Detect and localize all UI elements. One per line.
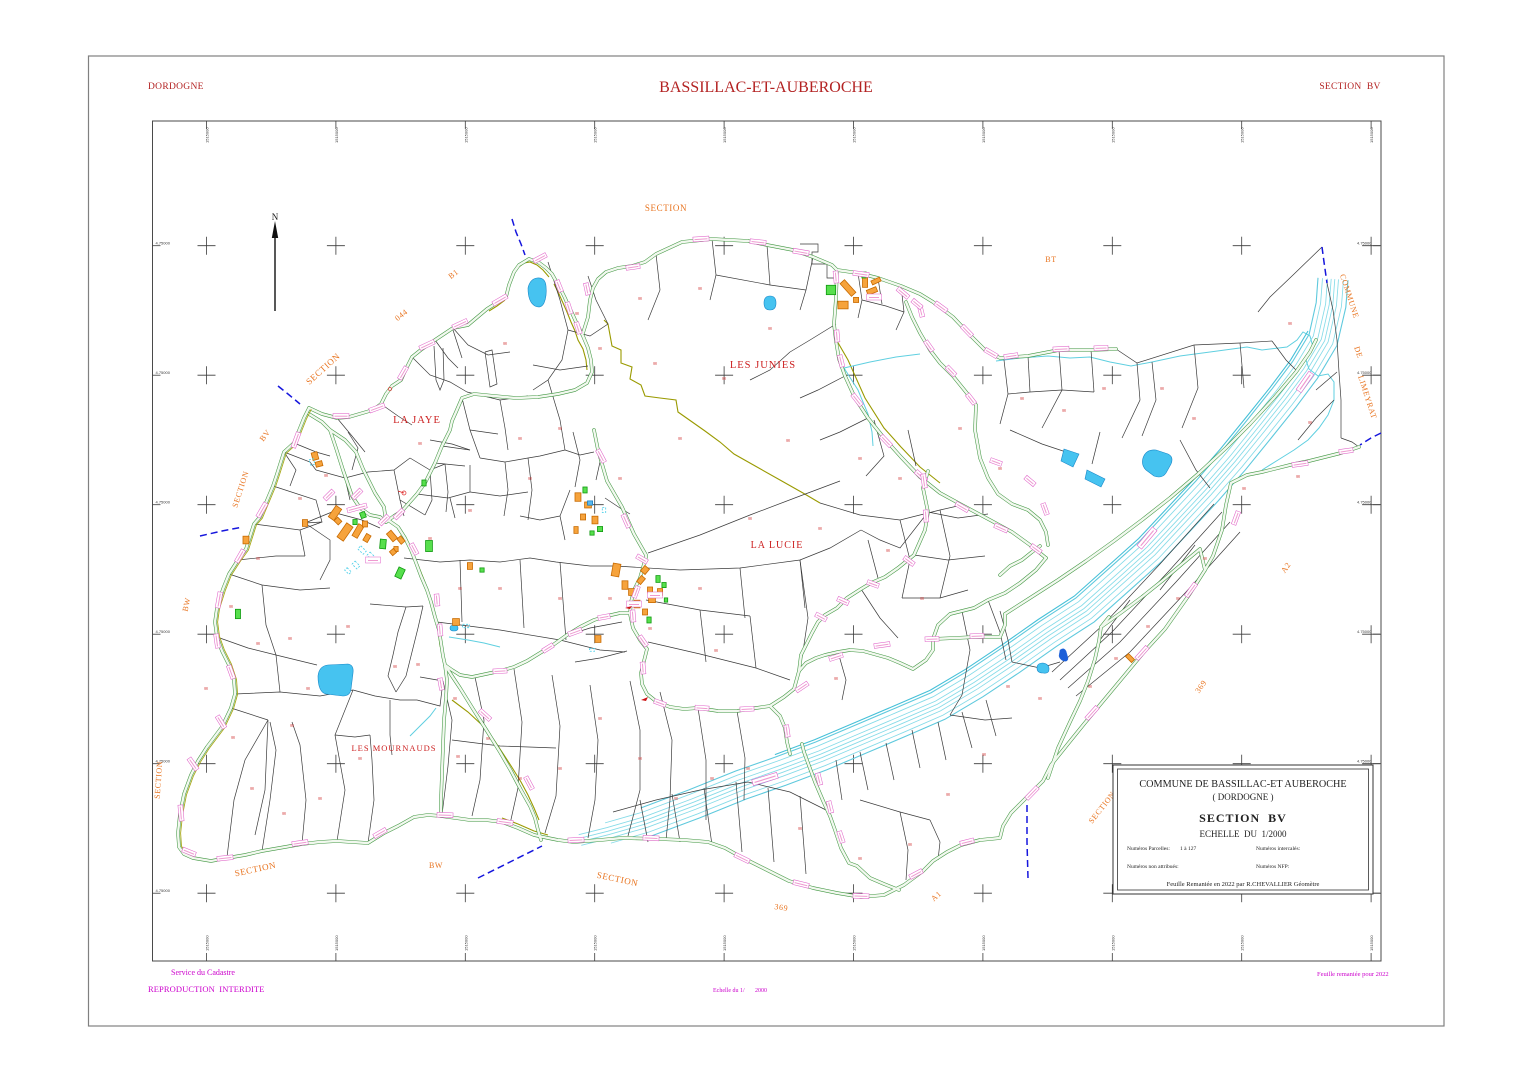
svg-text:88: 88	[698, 587, 702, 591]
svg-text:88: 88	[324, 474, 328, 478]
svg-text:DORDOGNE: DORDOGNE	[148, 82, 204, 92]
svg-text:88: 88	[1020, 397, 1024, 401]
svg-text:SECTION BV: SECTION BV	[1319, 82, 1380, 92]
svg-text:88: 88	[498, 587, 502, 591]
svg-text:88: 88	[528, 477, 532, 481]
svg-text:1515000: 1515000	[205, 127, 210, 143]
svg-text:4.75000: 4.75000	[156, 370, 171, 375]
svg-text:88: 88	[1088, 685, 1092, 689]
svg-text:4.75000: 4.75000	[1357, 759, 1372, 764]
svg-text:Numéros intercalés:: Numéros intercalés:	[1256, 846, 1301, 852]
svg-text:1515000: 1515000	[852, 935, 857, 951]
svg-text:1515000: 1515000	[1110, 127, 1115, 143]
svg-text:88: 88	[653, 362, 657, 366]
svg-text:88: 88	[1203, 557, 1207, 561]
svg-text:88: 88	[306, 687, 310, 691]
svg-text:88: 88	[503, 342, 507, 346]
svg-text:88: 88	[1288, 322, 1292, 326]
svg-text:88: 88	[250, 787, 254, 791]
svg-text:N: N	[272, 212, 279, 222]
svg-text:88: 88	[1192, 417, 1196, 421]
svg-text:88: 88	[393, 665, 397, 669]
svg-text:88: 88	[958, 427, 962, 431]
svg-text:88: 88	[648, 627, 652, 631]
svg-text:88: 88	[358, 757, 362, 761]
svg-text:88: 88	[1114, 657, 1118, 661]
svg-text:88: 88	[575, 312, 579, 316]
svg-text:1515000: 1515000	[1369, 935, 1374, 951]
svg-text:88: 88	[453, 697, 457, 701]
svg-text:88: 88	[798, 827, 802, 831]
svg-text:COMMUNE DE BASSILLAC-ET AUBERO: COMMUNE DE BASSILLAC-ET AUBEROCHE	[1139, 779, 1346, 790]
svg-text:369: 369	[774, 902, 789, 913]
svg-text:Feuille remaniée pour 2022: Feuille remaniée pour 2022	[1317, 971, 1389, 978]
svg-text:1515000: 1515000	[722, 127, 727, 143]
svg-text:88: 88	[428, 537, 432, 541]
svg-text:1515000: 1515000	[1240, 127, 1245, 143]
svg-text:Feuille Remaniée en 2022 par: Feuille Remaniée en 2022 par R.CHEVALLIE…	[1167, 881, 1320, 888]
svg-text:BT: BT	[1045, 255, 1056, 264]
svg-text:88: 88	[920, 597, 924, 601]
svg-text:BASSILLAC-ET-AUBEROCHE: BASSILLAC-ET-AUBEROCHE	[659, 79, 873, 96]
svg-text:88: 88	[768, 327, 772, 331]
svg-text:88: 88	[518, 777, 522, 781]
svg-text:88: 88	[748, 517, 752, 521]
svg-text:88: 88	[1146, 625, 1150, 629]
svg-text:LES MOURNAUDS: LES MOURNAUDS	[351, 743, 436, 753]
svg-text:LES JUNIES: LES JUNIES	[730, 360, 796, 371]
svg-text:88: 88	[456, 755, 460, 759]
svg-text:88: 88	[416, 663, 420, 667]
svg-text:BW: BW	[429, 861, 443, 870]
svg-text:88: 88	[1160, 387, 1164, 391]
svg-text:88: 88	[256, 642, 260, 646]
svg-text:88: 88	[558, 767, 562, 771]
svg-text:1515000: 1515000	[981, 935, 986, 951]
svg-text:88: 88	[458, 587, 462, 591]
svg-text:88: 88	[886, 549, 890, 553]
svg-text:4.75000: 4.75000	[156, 241, 171, 246]
svg-text:88: 88	[468, 509, 472, 513]
svg-text:88: 88	[256, 557, 260, 561]
svg-text:88: 88	[558, 427, 562, 431]
svg-text:88: 88	[486, 737, 490, 741]
svg-text:2000: 2000	[755, 988, 767, 994]
svg-text:Echelle du 1/: Echelle du 1/	[713, 988, 745, 994]
svg-text:88: 88	[598, 347, 602, 351]
svg-text:SECTION: SECTION	[645, 203, 687, 213]
svg-text:4.75000: 4.75000	[156, 629, 171, 634]
svg-text:88: 88	[638, 757, 642, 761]
svg-text:88: 88	[818, 527, 822, 531]
svg-text:88: 88	[982, 753, 986, 757]
svg-text:1515000: 1515000	[205, 935, 210, 951]
svg-text:4.75000: 4.75000	[1357, 241, 1372, 246]
svg-text:88: 88	[1308, 421, 1312, 425]
svg-text:88: 88	[1038, 697, 1042, 701]
svg-text:88: 88	[710, 777, 714, 781]
svg-text:Service du Cadastre: Service du Cadastre	[171, 968, 235, 977]
svg-text:88: 88	[674, 797, 678, 801]
svg-text:88: 88	[288, 637, 292, 641]
svg-text:ECHELLE DU 1/2000: ECHELLE DU 1/2000	[1200, 829, 1287, 839]
svg-text:88: 88	[229, 605, 233, 609]
svg-text:88: 88	[204, 687, 208, 691]
svg-text:1515000: 1515000	[981, 127, 986, 143]
svg-text:88: 88	[598, 717, 602, 721]
svg-text:88: 88	[558, 597, 562, 601]
svg-text:88: 88	[298, 497, 302, 501]
svg-text:88: 88	[1006, 685, 1010, 689]
svg-text:88: 88	[418, 442, 422, 446]
svg-text:88: 88	[231, 736, 235, 740]
svg-text:88: 88	[858, 857, 862, 861]
svg-text:88: 88	[946, 793, 950, 797]
svg-text:88: 88	[518, 437, 522, 441]
svg-text:1515000: 1515000	[1369, 127, 1374, 143]
svg-text:88: 88	[678, 437, 682, 441]
svg-text:88: 88	[908, 843, 912, 847]
svg-text:1515000: 1515000	[463, 127, 468, 143]
svg-text:88: 88	[638, 297, 642, 301]
svg-text:88: 88	[318, 797, 322, 801]
svg-text:1515000: 1515000	[1240, 935, 1245, 951]
svg-text:88: 88	[282, 812, 286, 816]
svg-text:88: 88	[746, 767, 750, 771]
svg-text:1515000: 1515000	[334, 935, 339, 951]
svg-text:1515000: 1515000	[334, 127, 339, 143]
svg-text:4.75000: 4.75000	[1357, 629, 1372, 634]
svg-text:88: 88	[1242, 487, 1246, 491]
svg-text:88: 88	[722, 377, 726, 381]
svg-text:1515000: 1515000	[593, 935, 598, 951]
svg-text:88: 88	[698, 287, 702, 291]
svg-text:88: 88	[618, 477, 622, 481]
svg-text:88: 88	[346, 625, 350, 629]
svg-text:1515000: 1515000	[852, 127, 857, 143]
svg-text:88: 88	[714, 649, 718, 653]
svg-text:Numéros NFP:: Numéros NFP:	[1256, 864, 1290, 870]
svg-text:1515000: 1515000	[593, 127, 598, 143]
svg-text:88: 88	[858, 457, 862, 461]
svg-text:1515000: 1515000	[463, 935, 468, 951]
svg-text:88: 88	[290, 724, 294, 728]
svg-text:LA JAYE: LA JAYE	[393, 415, 441, 426]
svg-text:4.75000: 4.75000	[156, 888, 171, 893]
svg-text:88: 88	[898, 477, 902, 481]
svg-text:88: 88	[1296, 475, 1300, 479]
svg-text:88: 88	[608, 597, 612, 601]
svg-text:4.75000: 4.75000	[1357, 500, 1372, 505]
svg-text:( DORDOGNE ): ( DORDOGNE )	[1213, 792, 1274, 802]
svg-text:88: 88	[834, 677, 838, 681]
svg-text:1515000: 1515000	[1110, 935, 1115, 951]
svg-text:88: 88	[1062, 409, 1066, 413]
svg-text:4.75000: 4.75000	[156, 500, 171, 505]
svg-text:SECTION BV: SECTION BV	[1199, 811, 1287, 825]
svg-text:88: 88	[1102, 387, 1106, 391]
svg-text:88: 88	[998, 467, 1002, 471]
svg-text:1 à 127: 1 à 127	[1180, 846, 1196, 852]
svg-text:Numéros non attribués:: Numéros non attribués:	[1127, 864, 1179, 870]
svg-text:REPRODUCTION INTERDITE: REPRODUCTION INTERDITE	[148, 984, 265, 994]
svg-text:88: 88	[1176, 597, 1180, 601]
svg-text:LA LUCIE: LA LUCIE	[751, 540, 804, 551]
svg-text:1515000: 1515000	[722, 935, 727, 951]
svg-text:Numéros Parcelles:: Numéros Parcelles:	[1127, 846, 1170, 852]
svg-text:88: 88	[786, 439, 790, 443]
